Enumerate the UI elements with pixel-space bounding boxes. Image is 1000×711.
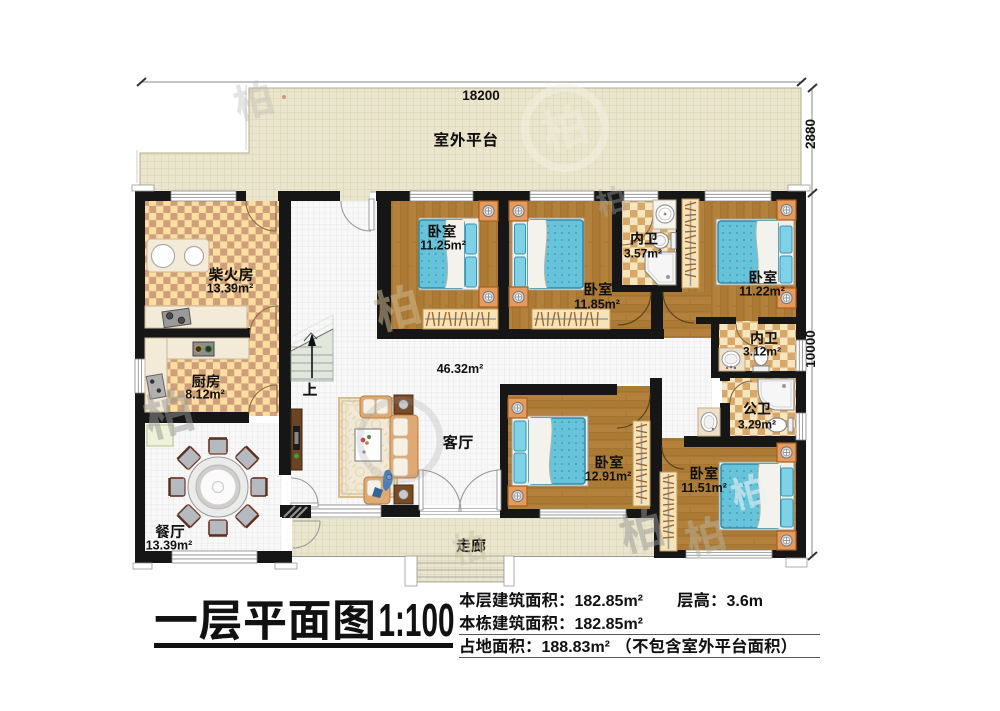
svg-text:182.85m²: 182.85m² bbox=[575, 593, 644, 610]
svg-text:8.12m²: 8.12m² bbox=[185, 388, 225, 402]
svg-text:3.57m²: 3.57m² bbox=[624, 247, 662, 261]
svg-text:2880: 2880 bbox=[803, 119, 818, 149]
svg-text:12.91m²: 12.91m² bbox=[585, 470, 632, 484]
svg-text:3.6m: 3.6m bbox=[727, 593, 763, 610]
svg-text:11.51m²: 11.51m² bbox=[681, 481, 727, 495]
svg-text:18200: 18200 bbox=[462, 88, 500, 103]
svg-text:182.85m²: 182.85m² bbox=[575, 616, 644, 633]
svg-text:13.39m²: 13.39m² bbox=[146, 539, 193, 553]
svg-text:13.39m²: 13.39m² bbox=[207, 282, 254, 296]
svg-text:3.12m²: 3.12m² bbox=[743, 345, 781, 359]
svg-text:188.83m²: 188.83m² bbox=[542, 639, 611, 656]
svg-text:11.85m²: 11.85m² bbox=[574, 298, 620, 312]
svg-text:11.22m²: 11.22m² bbox=[739, 285, 785, 299]
svg-text:11.25m²: 11.25m² bbox=[420, 239, 466, 253]
svg-text:1:100: 1:100 bbox=[379, 594, 455, 646]
svg-text:46.32m²: 46.32m² bbox=[437, 362, 484, 376]
svg-text:3.29m²: 3.29m² bbox=[738, 418, 776, 432]
